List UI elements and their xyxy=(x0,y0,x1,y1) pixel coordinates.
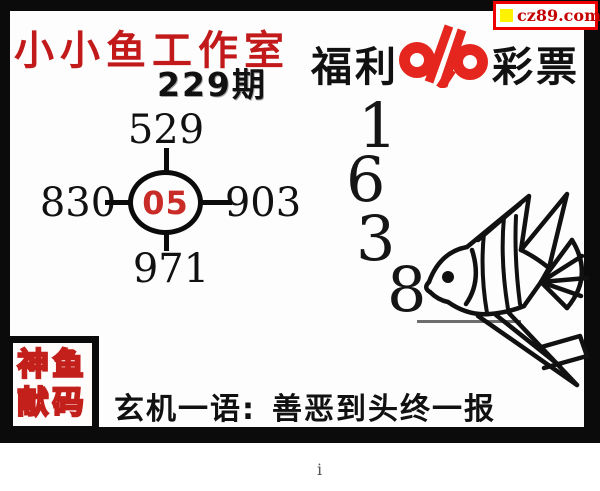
stamp-text-row2: 献码 xyxy=(18,386,88,422)
mystery-phrase-text: 善恶到头终一报 xyxy=(272,384,496,428)
connector-line-bottom xyxy=(164,234,169,251)
diagram-number-bottom: 971 xyxy=(133,249,209,289)
yellow-square-icon xyxy=(500,9,513,22)
site-url: cz89.com xyxy=(517,6,600,25)
stamp-text-row1: 神鱼 xyxy=(18,348,88,384)
mystery-phrase-label: 玄机一语: xyxy=(114,384,256,428)
welfare-lottery-logo-icon xyxy=(396,22,494,88)
lottery-tip-graphic: 小小鱼工作室 229期 福利 彩票 cz89.com 529 830 903 9… xyxy=(0,0,600,491)
center-circle: 05 xyxy=(128,170,203,235)
mystery-phrase: 玄机一语: 善恶到头终一报 xyxy=(114,384,496,428)
stray-mark: i xyxy=(317,460,322,479)
connector-line-top xyxy=(164,148,169,171)
stamp-box: 神鱼 献码 xyxy=(6,336,99,433)
issue-number: 229期 xyxy=(157,58,267,106)
connector-line-left xyxy=(105,200,129,205)
connector-line-right xyxy=(202,200,232,205)
fish-icon xyxy=(420,186,596,388)
diagram-number-right: 903 xyxy=(225,183,301,223)
site-link-badge[interactable]: cz89.com xyxy=(493,1,598,30)
center-number: 05 xyxy=(142,184,189,222)
diagram-number-top: 529 xyxy=(128,110,204,150)
fish-eye-dot xyxy=(442,271,454,283)
lottery-brand-suffix: 彩票 xyxy=(492,33,580,93)
lottery-brand-prefix: 福利 xyxy=(311,33,399,93)
